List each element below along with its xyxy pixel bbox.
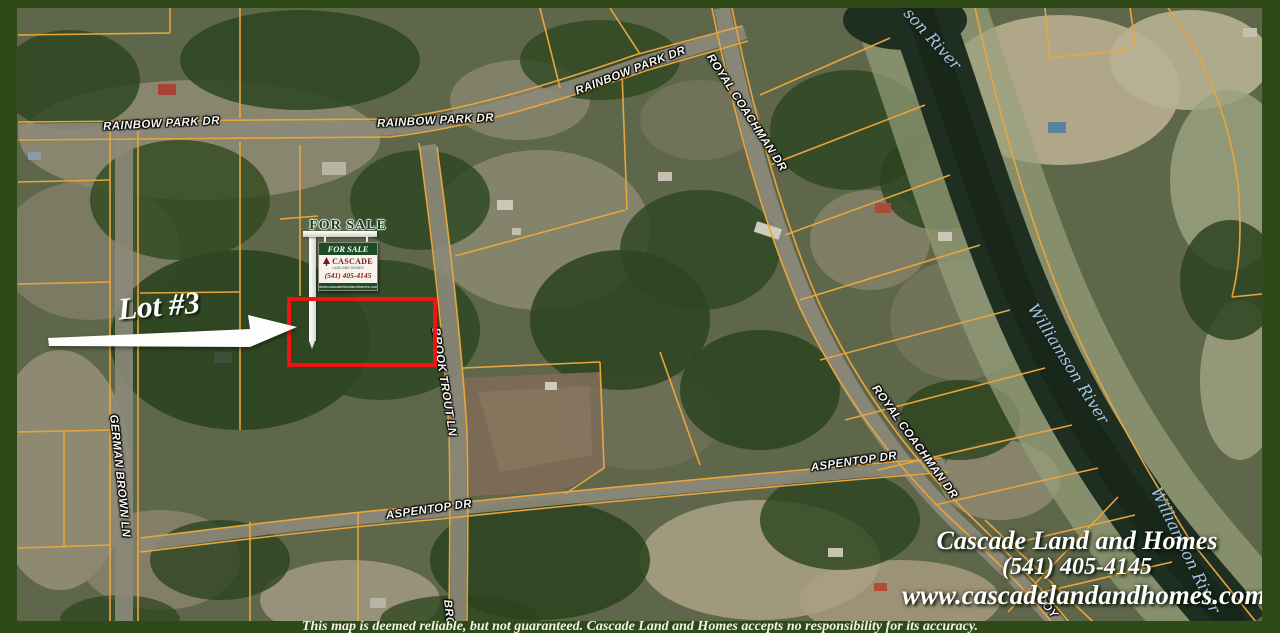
frame-border-top [0,0,1280,8]
disclaimer-bar: This map is deemed reliable, but not gua… [0,621,1280,633]
listing-map: RAINBOW PARK DR RAINBOW PARK DR RAINBOW … [0,0,1280,633]
branding-block: Cascade Land and Homes (541) 405-4145 ww… [902,527,1252,611]
frame-border-left [0,0,17,633]
disclaimer-text: This map is deemed reliable, but not gua… [0,621,1280,633]
branding-phone: (541) 405-4145 [902,554,1252,580]
branding-company: Cascade Land and Homes [902,527,1252,554]
branding-website: www.cascadelandandhomes.com [902,580,1252,611]
frame-border-right [1262,0,1280,633]
